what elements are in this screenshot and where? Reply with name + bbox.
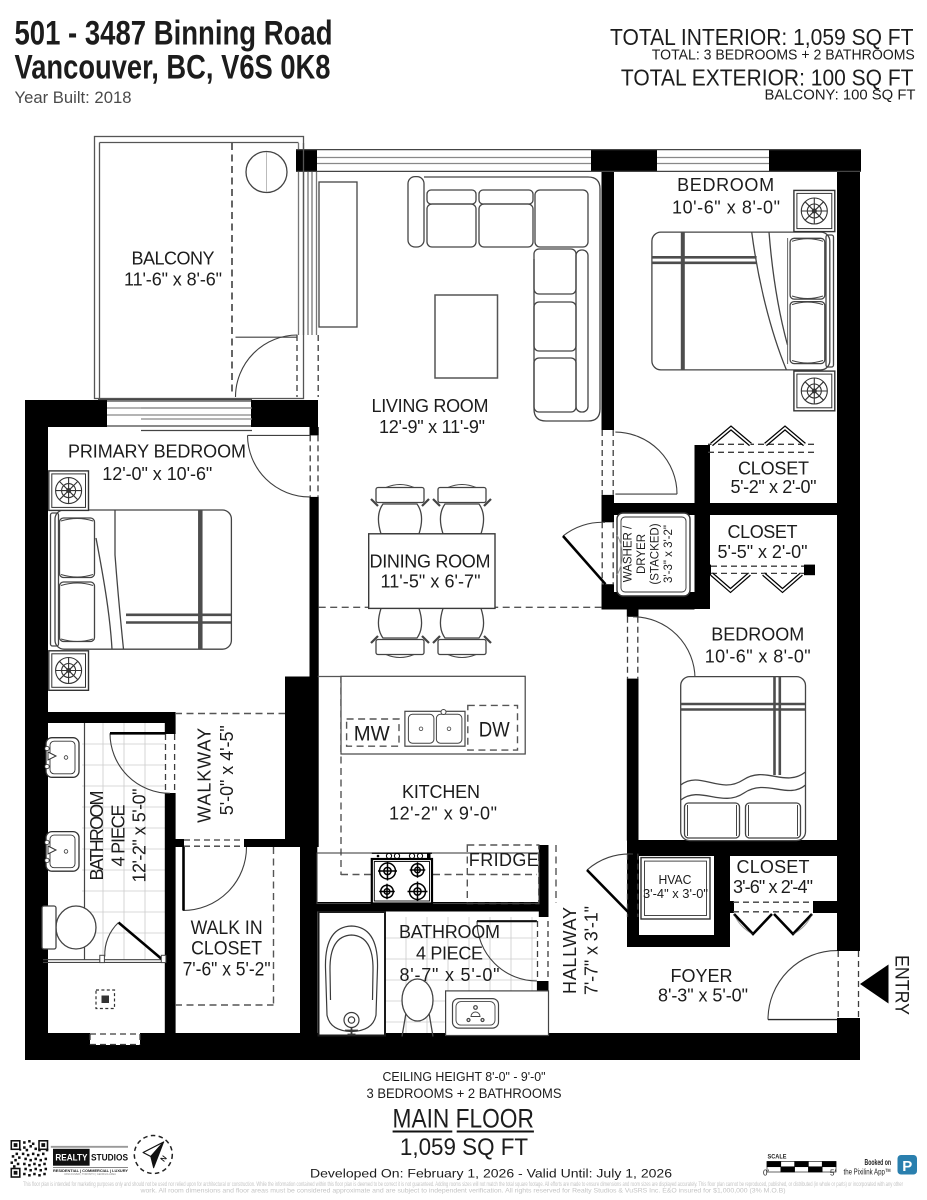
svg-text:P: P (902, 1158, 912, 1175)
svg-text:TOTAL: 3 BEDROOMS + 2 BATHROOM: TOTAL: 3 BEDROOMS + 2 BATHROOMS (652, 48, 915, 64)
svg-text:1,059 SQ FT: 1,059 SQ FT (400, 1134, 528, 1161)
svg-text:MW: MW (354, 723, 390, 746)
svg-text:8'-7" x 5'-0": 8'-7" x 5'-0" (400, 965, 500, 985)
svg-text:FRIDGE: FRIDGE (469, 850, 539, 870)
svg-text:TOTAL INTERIOR: 1,059 SQ FT: TOTAL INTERIOR: 1,059 SQ FT (610, 24, 914, 50)
svg-text:501 - 3487 Binning Road: 501 - 3487 Binning Road (15, 15, 333, 53)
svg-text:KITCHEN: KITCHEN (402, 782, 480, 802)
svg-text:5'-0" x 4'-5": 5'-0" x 4'-5" (217, 725, 237, 815)
svg-text:STUDIOS: STUDIOS (91, 1153, 128, 1163)
svg-text:This floor plan is intended fo: This floor plan is intended for marketin… (23, 1182, 903, 1188)
svg-text:12'-2" x 5'-0": 12'-2" x 5'-0" (130, 789, 150, 883)
svg-text:CLOSET: CLOSET (738, 459, 809, 479)
svg-text:LIVING ROOM: LIVING ROOM (372, 396, 489, 416)
svg-text:BALCONY: 100 SQ FT: BALCONY: 100 SQ FT (765, 87, 916, 104)
svg-text:5'-5" x 2'-0": 5'-5" x 2'-0" (718, 542, 808, 562)
svg-text:BATHROOM: BATHROOM (87, 791, 107, 881)
svg-text:VANCOUVER | TORONTO | GEORGIA: VANCOUVER | TORONTO | GEORGIA AREA (64, 1172, 116, 1176)
svg-text:3'-6" x 2'-4": 3'-6" x 2'-4" (733, 877, 813, 897)
svg-text:10'-6" x 8'-0": 10'-6" x 8'-0" (672, 198, 780, 218)
svg-text:7'-7" x 3'-1": 7'-7" x 3'-1" (582, 906, 602, 995)
svg-text:BALCONY: BALCONY (132, 249, 215, 269)
svg-text:DINING ROOM: DINING ROOM (370, 552, 491, 572)
svg-text:BEDROOM: BEDROOM (711, 625, 804, 645)
svg-text:WALKWAY: WALKWAY (195, 728, 215, 823)
svg-text:5': 5' (830, 1169, 836, 1178)
svg-text:the Pixilink App™: the Pixilink App™ (844, 1167, 892, 1177)
svg-text:SCALE: SCALE (768, 1154, 787, 1161)
svg-text:Developed On: February 1, 2026: Developed On: February 1, 2026 - Valid U… (310, 1167, 672, 1181)
svg-text:3'-4" x 3'-0": 3'-4" x 3'-0" (643, 887, 708, 901)
svg-text:WALK IN: WALK IN (191, 918, 263, 939)
svg-text:DRYER: DRYER (636, 534, 648, 574)
svg-text:4 PIECE: 4 PIECE (416, 944, 483, 964)
svg-text:WASHER /: WASHER / (623, 525, 635, 582)
svg-text:HVAC: HVAC (659, 873, 692, 887)
svg-text:7'-6" x 5'-2": 7'-6" x 5'-2" (183, 960, 271, 981)
svg-text:3'-3" x 3'-2": 3'-3" x 3'-2" (663, 525, 675, 583)
svg-text:12'-0" x 10'-6": 12'-0" x 10'-6" (102, 464, 212, 484)
svg-text:DW: DW (479, 719, 510, 742)
svg-text:FOYER: FOYER (671, 966, 733, 986)
svg-text:8'-3" x 5'-0": 8'-3" x 5'-0" (658, 986, 748, 1006)
svg-text:HALLWAY: HALLWAY (560, 907, 580, 994)
svg-text:4 PIECE: 4 PIECE (108, 805, 128, 867)
svg-text:3 BEDROOMS + 2 BATHROOMS: 3 BEDROOMS + 2 BATHROOMS (367, 1086, 562, 1101)
svg-text:CLOSET: CLOSET (737, 857, 810, 877)
svg-text:MAIN FLOOR: MAIN FLOOR (393, 1104, 534, 1134)
svg-text:BATHROOM: BATHROOM (399, 922, 500, 942)
svg-text:Vancouver, BC, V6S 0K8: Vancouver, BC, V6S 0K8 (15, 49, 331, 87)
svg-text:(STACKED): (STACKED) (650, 523, 662, 584)
svg-text:REALTY: REALTY (55, 1153, 87, 1163)
svg-text:10'-6" x 8'-0": 10'-6" x 8'-0" (705, 647, 811, 667)
svg-text:ENTRY: ENTRY (891, 955, 913, 1015)
svg-text:12'-9" x 11'-9": 12'-9" x 11'-9" (379, 417, 485, 437)
svg-text:0': 0' (763, 1169, 769, 1178)
svg-text:BEDROOM: BEDROOM (677, 175, 774, 195)
svg-text:11'-6" x 8'-6": 11'-6" x 8'-6" (124, 270, 222, 290)
svg-text:CEILING HEIGHT 8'-0" - 9'-0": CEILING HEIGHT 8'-0" - 9'-0" (383, 1070, 546, 1084)
svg-text:work. All room dimensions and: work. All room dimensions and floor area… (139, 1189, 785, 1195)
svg-text:CLOSET: CLOSET (191, 939, 262, 960)
svg-text:11'-5" x 6'-7": 11'-5" x 6'-7" (381, 572, 481, 592)
svg-text:Booked on: Booked on (865, 1157, 892, 1167)
svg-text:5'-2" x 2'-0": 5'-2" x 2'-0" (731, 477, 817, 497)
svg-text:Year Built: 2018: Year Built: 2018 (15, 88, 132, 107)
svg-text:CLOSET: CLOSET (728, 522, 798, 542)
svg-text:PRIMARY BEDROOM: PRIMARY BEDROOM (68, 442, 246, 462)
svg-text:12'-2" x 9'-0": 12'-2" x 9'-0" (389, 804, 497, 824)
